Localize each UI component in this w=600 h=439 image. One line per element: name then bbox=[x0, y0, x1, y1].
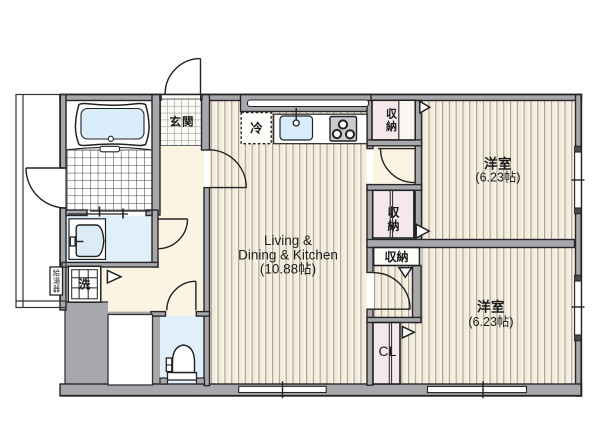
svg-text:洋室: 洋室 bbox=[484, 156, 512, 172]
svg-text:収納: 収納 bbox=[384, 249, 408, 264]
svg-text:CL: CL bbox=[379, 343, 397, 359]
svg-text:収: 収 bbox=[386, 108, 398, 121]
svg-text:玄関: 玄関 bbox=[170, 115, 195, 129]
svg-text:冷: 冷 bbox=[250, 121, 263, 136]
svg-text:器: 器 bbox=[53, 284, 60, 293]
svg-text:納: 納 bbox=[386, 119, 397, 133]
svg-text:納: 納 bbox=[387, 218, 399, 233]
svg-text:収: 収 bbox=[387, 206, 400, 220]
svg-text:(6.23帖): (6.23帖) bbox=[468, 314, 513, 329]
svg-text:(6.23帖): (6.23帖) bbox=[475, 170, 520, 185]
svg-text:(10.88帖): (10.88帖) bbox=[260, 262, 316, 277]
svg-text:洋室: 洋室 bbox=[477, 299, 505, 315]
svg-text:Living &: Living & bbox=[264, 233, 312, 248]
svg-text:Dining & Kitchen: Dining & Kitchen bbox=[238, 247, 338, 262]
svg-text:洗: 洗 bbox=[78, 277, 90, 292]
